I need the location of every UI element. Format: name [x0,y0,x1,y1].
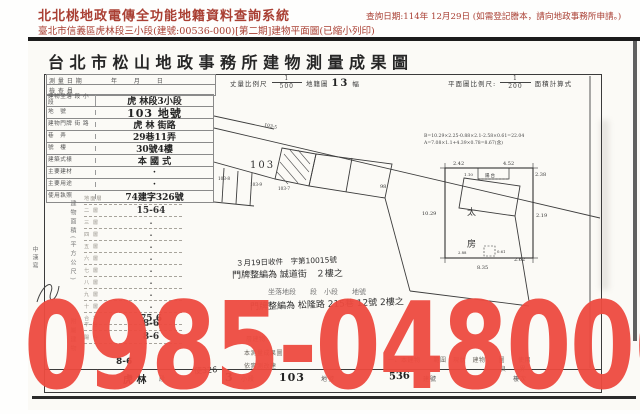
area-row: 二 層15-64 [84,205,182,217]
plan-dim-right-top: 2.38 [535,172,546,178]
area-row: 七 層· [84,265,182,277]
plan-dim-left: 10.29 [422,211,436,217]
map-parcel-98: 98 [380,184,386,190]
map-parcel-103-9: 103-9 [250,182,262,187]
land-registry-query-page: 北北桃地政電傳全功能地籍資料查詢系統 查詢日期:114年 12月29日 (如需登… [0,0,640,414]
document-title: 台北市松山地政事務所建物測量成果圖 [48,49,414,73]
area-row: 六 層· [84,253,182,265]
plan-inner-char-1: 太 [467,206,476,218]
map-parcel-103-8: 103-8 [218,176,230,181]
plan-inner-char-2: 房 [467,238,476,250]
plan-balcony-dim: 1.10 [464,172,473,177]
plan-dim-small-1: 2.88 [458,250,467,255]
query-date: 查詢日期:114年 12月29日 (如需登記謄本，請向地政事務所申請。) [366,10,621,22]
plan-dim-bottom-2: 2.62 [514,257,525,263]
document-subtitle: 臺北市信義區虎林段三小段(建號:00536-000)[第二期]建物平面圖(已縮小… [38,23,375,37]
map-parcel-103-5: 103-5 [264,122,278,131]
floor-plan-sketch: B=10.29×2.25-0.88×2.1-2.58×0.61=22.04 A=… [420,125,605,280]
watermark-phone: 0985-048006 [24,288,640,408]
scan-top-edge [28,37,640,41]
system-title: 北北桃地政電傳全功能地籍資料查詢系統 [38,5,290,24]
table-row: 主要建材 · [46,167,214,179]
map-parcel-103: 103 [250,160,275,171]
area-row: 四 層· [84,229,182,241]
plan-balcony-label: 陽台 [485,172,496,179]
plan-formula-2: A=7.08×1.1+4.39×0.78=8.67(含) [423,139,503,146]
plan-dim-right: 2.19 [536,213,547,219]
plan-formula-1: B=10.29×2.25-0.88×2.1-2.58×0.61=22.04 [424,133,524,139]
plan-dim-small-2: 0.61 [497,249,505,254]
plan-dim-top-1: 2.42 [453,161,464,167]
area-row: 地面層· [84,193,182,205]
plan-dim-bottom: 8.35 [477,265,488,271]
area-row: 五 層· [84,241,182,253]
handnote-margin: 中漢寫 [30,246,39,270]
plan-dim-top-2: 4.52 [503,161,514,167]
table-row: 建築式樣 本 國 式 [46,155,214,167]
building-info-table: 建物坐落 段 小段 虎 林段3小段 地 號 103 地號 建物門牌 街 路 虎 … [46,94,214,203]
map-parcel-103-7: 103-7 [278,186,290,191]
area-row: 三 層· [84,217,182,229]
